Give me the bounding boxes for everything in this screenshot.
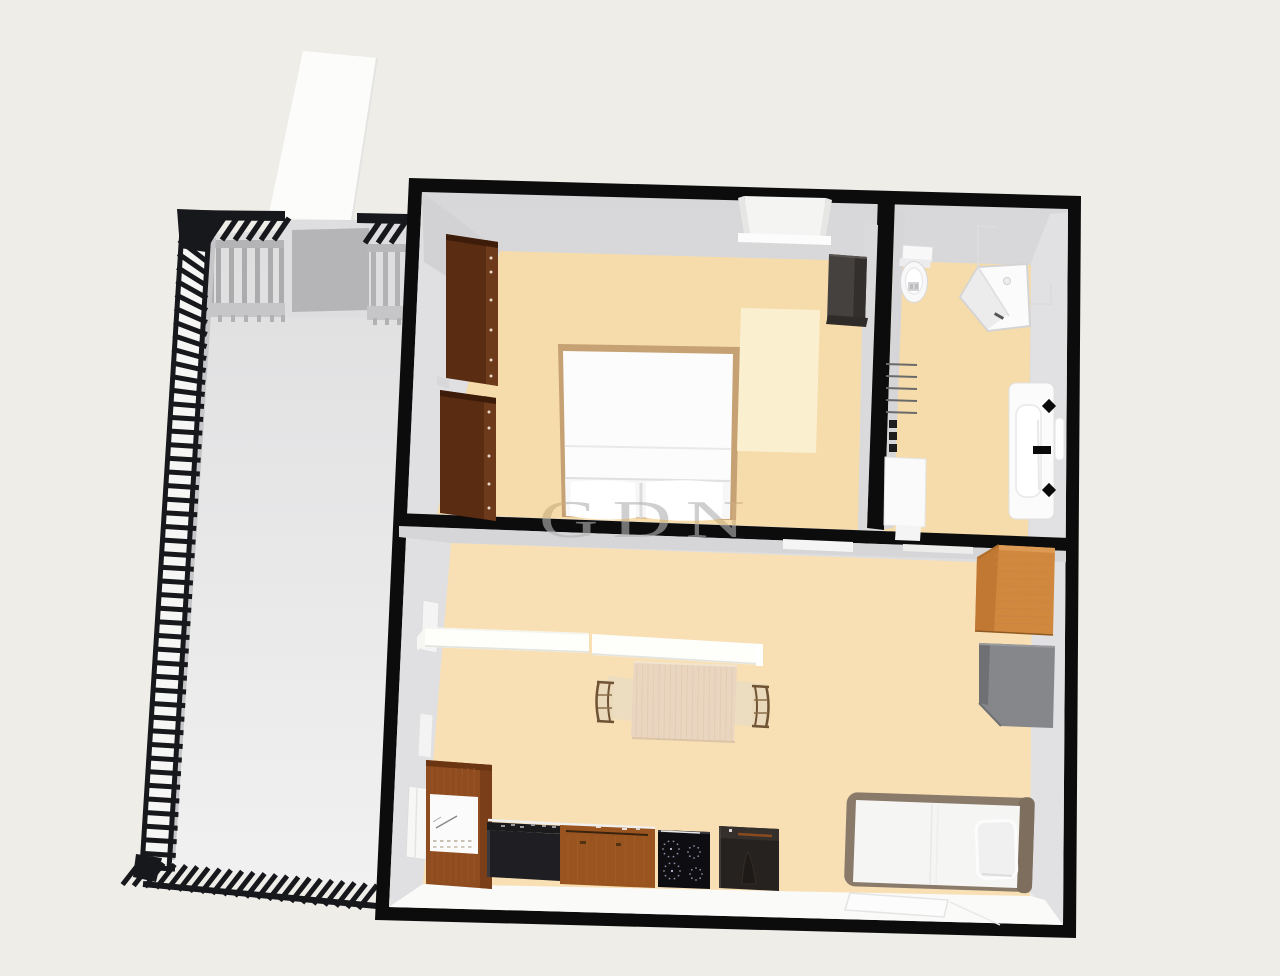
svg-text:GDN: GDN xyxy=(539,489,759,548)
